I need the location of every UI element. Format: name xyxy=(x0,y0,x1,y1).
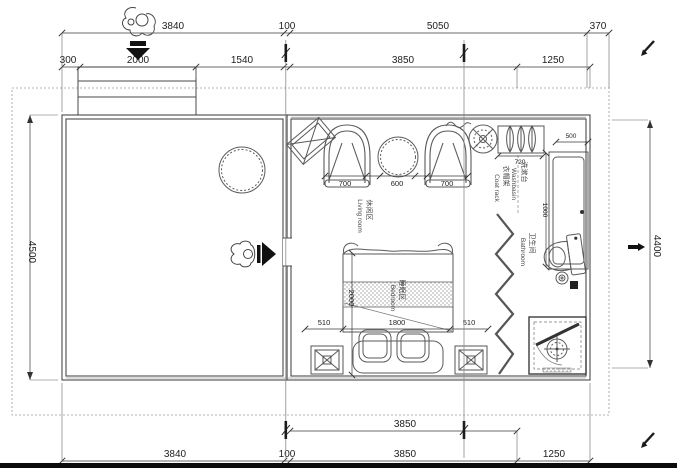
label-bathroom-zh: 卫生间 xyxy=(528,233,537,254)
bed-blanket-hatch xyxy=(343,282,453,307)
armchair-left xyxy=(324,125,370,187)
dim-top-370: 370 xyxy=(590,21,607,32)
pencil-icon-top xyxy=(641,41,654,56)
shower-enclosure xyxy=(529,317,586,374)
label-coatrack-en: Coat rack xyxy=(493,174,500,203)
dim-chair-700b: 700 xyxy=(441,179,454,188)
grid-lines xyxy=(282,40,468,458)
console-table-diamond xyxy=(287,118,336,165)
walls xyxy=(62,115,590,380)
dim-top-5050: 5050 xyxy=(427,21,450,32)
round-side-table xyxy=(378,137,418,177)
label-washbasin-zh: 洗漱台 xyxy=(520,162,529,183)
bottom-rule xyxy=(0,463,677,468)
bathroom-fixture-square xyxy=(570,281,578,289)
person-entering-icon xyxy=(231,241,255,267)
dim-top-1250: 1250 xyxy=(542,55,565,66)
dim-washbasin-1000: 1000 xyxy=(541,203,548,218)
dim-bottom-100: 100 xyxy=(279,449,296,460)
folding-partition-zigzag xyxy=(496,214,513,374)
dim-top-1540: 1540 xyxy=(231,55,254,66)
dim-bed-2000: 2000 xyxy=(347,290,356,307)
dim-bottom-3850b: 3850 xyxy=(394,449,417,460)
label-bathroom-en: Bathroom xyxy=(519,238,526,266)
label-bedroom-zh: 睡眠区 xyxy=(398,280,406,301)
dim-bottom-3850a: 3850 xyxy=(394,419,417,430)
dim-washbasin-500: 500 xyxy=(566,133,577,140)
dim-bottom-3840: 3840 xyxy=(164,449,187,460)
label-washbasin-en: Washbasin xyxy=(510,168,517,200)
entry-door-opening xyxy=(283,238,292,266)
floor-plan: 3840 100 5050 370 300 2000 1540 3850 125… xyxy=(0,0,677,473)
foot-bench xyxy=(353,330,443,373)
dim-bottom-1250: 1250 xyxy=(543,449,566,460)
coat-rack xyxy=(498,126,544,153)
label-bedroom-en: Bedroom xyxy=(389,285,396,311)
entry-steps xyxy=(78,67,196,115)
dim-top-3840: 3840 xyxy=(162,21,185,32)
dim-left-4500: 4500 xyxy=(26,241,37,264)
dim-chair-700a: 700 xyxy=(339,179,352,188)
dim-table-600: 600 xyxy=(391,179,404,188)
floor-drain-spiral xyxy=(556,272,568,284)
dim-bed-510r: 510 xyxy=(463,318,476,327)
dim-right-4400: 4400 xyxy=(651,235,662,258)
pencil-icon-bottom xyxy=(641,433,654,448)
entry-arrow-right-icon xyxy=(257,242,276,266)
nightstand-left xyxy=(311,346,343,374)
pencil-marker-right xyxy=(628,243,645,251)
floor-plan-canvas: 3840 100 5050 370 300 2000 1540 3850 125… xyxy=(0,0,677,473)
deck-round-table xyxy=(219,147,265,193)
label-living-en: Living room xyxy=(356,199,363,233)
label-coatrack-zh: 衣帽架 xyxy=(502,166,511,187)
dim-bed-1800: 1800 xyxy=(389,318,406,327)
dim-top-3850: 3850 xyxy=(392,55,415,66)
dim-bed-510l: 510 xyxy=(318,318,331,327)
person-top-icon xyxy=(123,8,156,36)
nightstand-right xyxy=(455,346,487,374)
label-living-zh: 休闲区 xyxy=(365,200,374,221)
dim-top-100: 100 xyxy=(279,21,296,32)
ceiling-fan-icon xyxy=(469,125,497,153)
dimensions: 3840 100 5050 370 300 2000 1540 3850 125… xyxy=(26,21,662,464)
